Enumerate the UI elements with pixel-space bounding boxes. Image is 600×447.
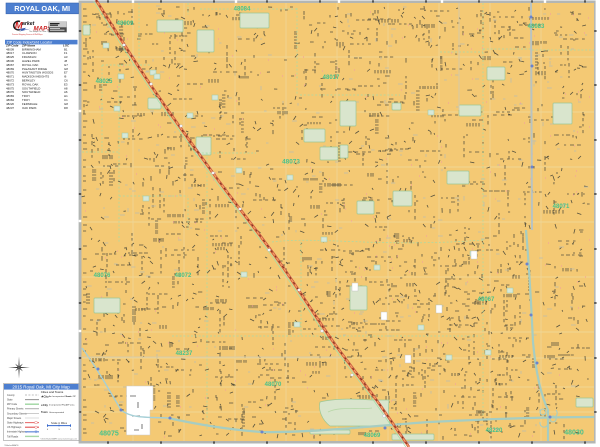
svg-text:★City: ★City (41, 395, 49, 399)
svg-text:48220: 48220 (486, 428, 503, 434)
svg-text:State Highways: State Highways (7, 422, 24, 425)
svg-text:Secondary Streets: Secondary Streets (7, 412, 27, 415)
svg-text:Primary Streets: Primary Streets (7, 408, 24, 411)
svg-text:48071: 48071 (553, 204, 570, 210)
svg-text:ROYAL OAK, MI: ROYAL OAK, MI (14, 4, 70, 13)
svg-text:ZIP area: ZIP area (66, 404, 75, 407)
svg-text:48084: 48084 (234, 7, 251, 13)
svg-text:Scale in Miles: Scale in Miles (51, 421, 68, 425)
svg-text:48083: 48083 (528, 24, 545, 30)
svg-text:Cities and Towns: Cities and Towns (41, 390, 64, 394)
svg-text:ZIP Code: ZIP Code (7, 403, 18, 406)
svg-text:Inside ZIP: Inside ZIP (66, 396, 76, 398)
svg-text:48070: 48070 (265, 382, 282, 388)
svg-text:48067: 48067 (478, 297, 495, 303)
svg-text:●City: ●City (41, 403, 48, 407)
svg-text:OAK PARK: OAK PARK (22, 106, 37, 110)
svg-text:48025: 48025 (96, 79, 113, 85)
svg-text:D8: D8 (64, 106, 68, 110)
svg-text:US Highways: US Highways (7, 426, 22, 429)
svg-text:48076: 48076 (94, 273, 111, 279)
svg-text:48030: 48030 (564, 430, 584, 437)
svg-text:48009: 48009 (117, 21, 134, 27)
svg-text:48075: 48075 (99, 431, 119, 438)
svg-text:Major Streets: Major Streets (7, 417, 22, 420)
svg-text:Toll Roads: Toll Roads (7, 435, 19, 438)
svg-text:Unincorporated: Unincorporated (49, 411, 65, 414)
svg-text:State: State (7, 399, 13, 402)
svg-text:County: County (7, 394, 15, 397)
svg-text:Town: Town (41, 410, 48, 414)
svg-text:48237: 48237 (176, 351, 193, 357)
svg-text:©2015 MarketMAPS www.marketma: ©2015 MarketMAPS www.marketmaps.com (40, 438, 77, 441)
svg-text:48073: 48073 (282, 158, 300, 165)
svg-text:48072: 48072 (175, 273, 192, 279)
svg-text:Premier Mapping Source of Wall: Premier Mapping Source of Wall Maps (12, 34, 43, 36)
svg-text:48237: 48237 (6, 106, 14, 110)
svg-text:©MarketMAPS: ©MarketMAPS (4, 444, 19, 447)
svg-text:48017: 48017 (323, 75, 340, 81)
svg-text:48069: 48069 (364, 433, 381, 439)
